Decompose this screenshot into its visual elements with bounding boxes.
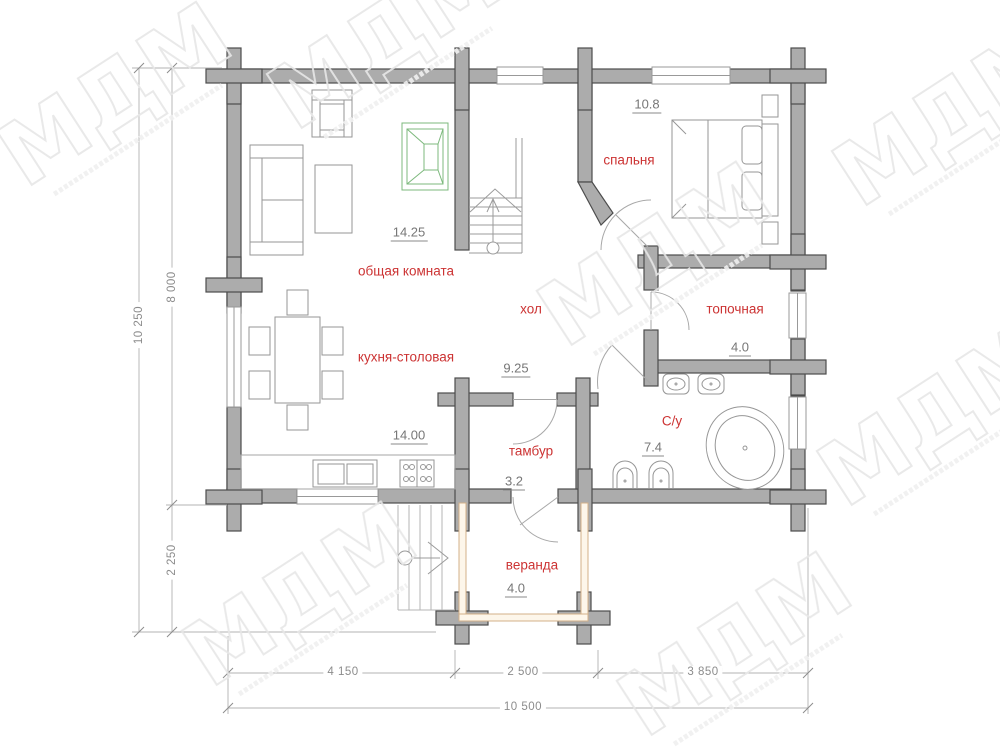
room-area-boiler: 4.0 [729, 340, 751, 357]
interior-stairs [469, 138, 522, 254]
room-label-bedroom: спальня [603, 153, 654, 168]
dim-bottom-2: 2 500 [503, 666, 542, 678]
room-label-tambour: тамбур [509, 444, 553, 459]
dim-bottom-1: 4 150 [323, 666, 362, 678]
room-label-hall: хол [520, 302, 542, 317]
room-area-tambour: 3.2 [503, 474, 525, 491]
watermark-text: МДМ [800, 302, 1000, 526]
room-area-veranda: 4.0 [505, 581, 527, 598]
sofa [250, 145, 303, 255]
floor-plan-svg: МДМ МДМ МДМ МДМ МДМ МДМ МДМ [0, 0, 1000, 750]
dim-left-total: 10 250 [133, 302, 145, 348]
watermark-text: МДМ [600, 532, 869, 750]
floor-plan-canvas: МДМ МДМ МДМ МДМ МДМ МДМ МДМ общая комнат… [0, 0, 1000, 750]
coffee-table [315, 165, 352, 233]
dim-bottom-total: 10 500 [500, 701, 546, 713]
room-area-bedroom: 10.8 [632, 97, 661, 114]
room-area-living: 14.25 [391, 225, 428, 242]
room-label-veranda: веранда [506, 558, 558, 573]
room-label-boiler: топочная [706, 302, 763, 317]
dim-left-lower: 2 250 [166, 540, 178, 579]
room-label-kitchen: кухня-столовая [358, 350, 454, 365]
room-label-living: общая комната [358, 264, 454, 279]
room-area-kitchen: 14.00 [391, 428, 428, 445]
dim-bottom-3: 3 850 [683, 666, 722, 678]
dining-table [275, 317, 320, 403]
stove [400, 460, 434, 487]
watermark-text: МДМ [0, 0, 249, 207]
watermark-text: МДМ [815, 2, 1000, 226]
bathtub [693, 394, 797, 502]
room-area-bathroom: 7.4 [642, 440, 664, 457]
washbasin [663, 374, 724, 394]
room-area-hall: 9.25 [501, 361, 530, 378]
fireplace [402, 123, 448, 190]
kitchen-sink [313, 460, 377, 487]
watermark-layer: МДМ МДМ МДМ МДМ МДМ МДМ МДМ [0, 0, 1000, 750]
toilet [613, 461, 673, 488]
room-label-bathroom: С/у [662, 414, 682, 429]
dim-left-upper: 8 000 [166, 267, 178, 306]
